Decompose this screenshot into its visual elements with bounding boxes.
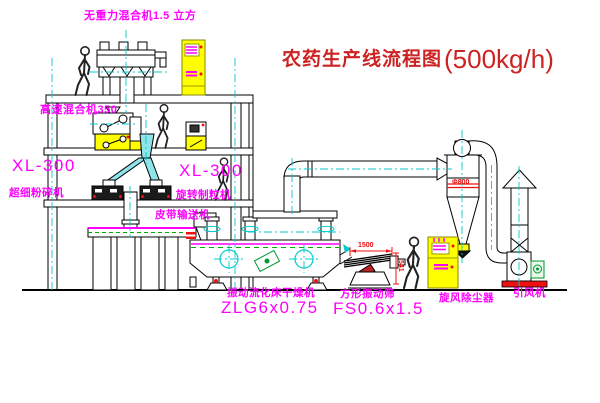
label-belt-conveyor: 皮带输送机: [155, 210, 210, 221]
induced-draft-fan-unit: [502, 170, 547, 287]
label-dryer-model: ZLG6x0.75: [221, 299, 319, 316]
label-granulator-model: XL-300: [179, 162, 243, 179]
duct-flange: [122, 220, 139, 224]
label-pulverizer-name: 超细粉碎机: [9, 188, 64, 199]
diagram-title: 农药生产线流程图 (500kg/h): [282, 46, 554, 72]
feed-accent: [186, 232, 196, 235]
label-cyclone: 旋风除尘器: [439, 293, 494, 304]
dim-cyclone-diameter: Φ800: [452, 179, 469, 186]
person-figure: [404, 237, 419, 288]
process-flow-screenshot: 农药生产线流程图 (500kg/h) 无重力混合机1.5 立方 高速混合机350…: [0, 0, 600, 403]
dim-sieve-outlet-height: 541: [397, 260, 404, 272]
control-cabinet-ground: [428, 237, 458, 288]
label-gravity-mixer: 无重力混合机1.5 立方: [84, 11, 196, 22]
label-dryer-name: 振动流化床干燥机: [227, 288, 315, 299]
label-sieve-name: 方形振动筛: [340, 289, 395, 300]
title-text: 农药生产线流程图: [282, 49, 442, 72]
feed-station: [186, 122, 206, 150]
label-granulator-name: 旋转制粒机: [176, 190, 231, 201]
title-capacity: (500kg/h): [444, 46, 554, 72]
control-cabinet-top: [182, 40, 205, 95]
label-pulverizer-model: XL-300: [12, 157, 76, 174]
label-fan: 引风机: [513, 288, 546, 299]
label-high-speed-mixer: 高速混合机350: [40, 105, 117, 116]
feed-accent: [186, 237, 196, 240]
label-sieve-model: FS0.6x1.5: [333, 300, 424, 317]
belt-conveyor-machine: [88, 228, 196, 290]
gravity-mixer: [97, 42, 166, 103]
dim-sieve-length: 1500: [358, 242, 374, 249]
person-figure: [155, 105, 168, 148]
person-figure: [76, 47, 90, 95]
y-distribution-pipe: [105, 158, 160, 182]
